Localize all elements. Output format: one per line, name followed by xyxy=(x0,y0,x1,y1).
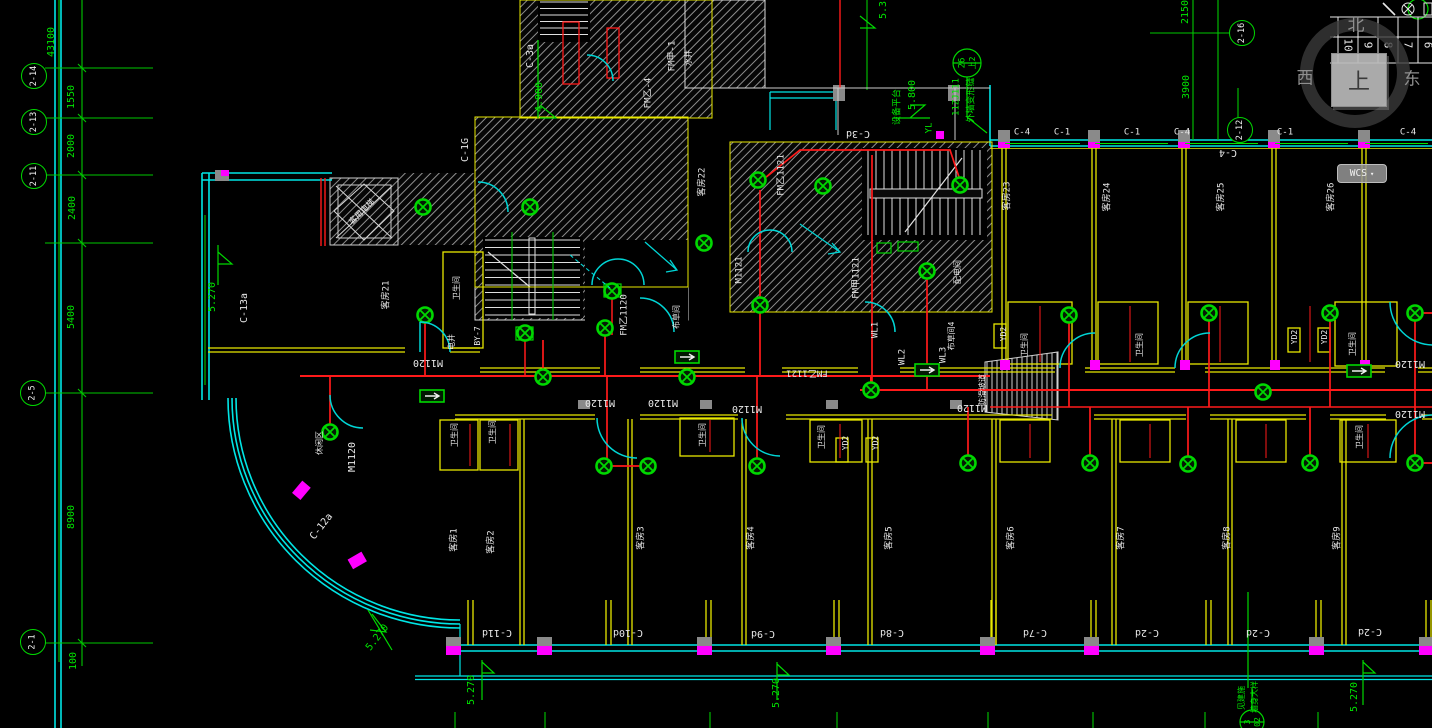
elev-5270-a: 5.270 xyxy=(208,282,218,312)
room-g4: 客房4 xyxy=(748,526,757,549)
bathroom-label: 卫生间 xyxy=(1349,332,1357,356)
wl2-label: WL2 xyxy=(899,349,908,365)
elev-5270-b: 5.270 xyxy=(467,675,477,705)
win-c4-dn: C-4 xyxy=(1219,147,1237,157)
win-c2d-1: C-2d xyxy=(1135,627,1159,637)
bathroom-label: 卫生间 xyxy=(1356,425,1364,449)
grid-bubble-2-1: 2-1 xyxy=(20,629,46,655)
win-c9d: C-9d xyxy=(751,628,775,638)
grid-bubble-2-11: 2-11 xyxy=(21,163,47,189)
wall-detail-label: 墙身大样 xyxy=(1251,681,1259,713)
platform-label: 设备平台 xyxy=(894,89,903,125)
dim-2000: 2000 xyxy=(67,134,77,158)
door-fmy1121-b: FM乙1121 xyxy=(786,368,828,377)
win-c3d: C-3d xyxy=(846,128,870,138)
dim-2400: 2400 xyxy=(68,196,78,220)
win-c13a: C-13a xyxy=(240,293,250,323)
win-c1-1: C-1 xyxy=(1054,129,1070,138)
dim-100: 100 xyxy=(69,652,79,670)
grid-bubble-2-12: 2-12 xyxy=(1227,117,1253,143)
win-c3a: C-3a xyxy=(526,44,536,68)
viewcube-top-face[interactable]: 上 xyxy=(1331,53,1387,107)
see-arch-label: 见建施 xyxy=(1238,686,1246,710)
detail1-bottom: 上2 xyxy=(969,57,977,70)
room-g2: 客房2 xyxy=(488,530,497,553)
yd2-label: YD2 xyxy=(842,436,850,450)
win-c1g: C-1G xyxy=(461,138,471,162)
chevron-down-icon: ▾ xyxy=(1370,170,1374,178)
grid-bubble-2-5: 2-5 xyxy=(20,380,46,406)
door-m1120-c: M1120 xyxy=(648,397,678,407)
room-g24: 客房24 xyxy=(1104,183,1113,212)
dim-2150: 2150 xyxy=(1181,0,1191,24)
door-m1120-g: M1120 xyxy=(1395,408,1425,418)
win-c2d-2: C-2d xyxy=(1246,627,1270,637)
room-g1: 客房1 xyxy=(451,528,460,551)
room-g26: 客房26 xyxy=(1328,183,1337,212)
detail2-bottom: 02 xyxy=(1254,717,1262,727)
wcs-menu[interactable]: WCS▾ xyxy=(1337,164,1387,183)
room-g9: 客房9 xyxy=(1334,526,1343,549)
door-m1120-f: M1120 xyxy=(1395,358,1425,368)
win-c1-2: C-1 xyxy=(1124,129,1140,138)
door-fmj1121: FM甲1121 xyxy=(853,257,862,299)
dim-8900: 8900 xyxy=(67,505,77,529)
interior-walls xyxy=(208,0,1432,645)
win-c4-2: C-4 xyxy=(1174,129,1190,138)
detail1-top: 26 xyxy=(959,58,968,69)
joint-ref-label: 11ZJ111 xyxy=(953,78,962,116)
bathroom-label: 卫生间 xyxy=(453,276,461,300)
win-c11d: C-11d xyxy=(482,627,512,637)
elev-5-3: 5.3 xyxy=(879,1,889,19)
room-g23: 客房23 xyxy=(1004,182,1013,211)
bathroom-label: 卫生间 xyxy=(1136,333,1144,357)
by7-label: BY-7 xyxy=(474,326,482,345)
win-c4-1: C-4 xyxy=(1014,129,1030,138)
yl-label: YL xyxy=(926,123,935,134)
door-fmy1120: FM乙1120 xyxy=(621,294,630,336)
win-c10d: C-10d xyxy=(613,627,643,637)
yd2-label: YD2 xyxy=(1000,327,1008,341)
room-g3: 客房3 xyxy=(638,526,647,549)
dj-label: 电井 xyxy=(448,334,456,350)
bathroom-label: 卫生间 xyxy=(489,420,497,444)
drawing-geometry xyxy=(0,0,1432,728)
wl3-label: WL3 xyxy=(940,347,949,363)
room-g6: 客房6 xyxy=(1008,526,1017,549)
door-m1120-h: M1120 xyxy=(348,442,358,472)
door-m1120-b: M1120 xyxy=(585,397,615,407)
room-g7: 客房7 xyxy=(1118,526,1127,549)
yd2-label: YD2 xyxy=(1291,330,1299,344)
leisure-label: 休闲区 xyxy=(316,431,324,455)
dim-5400: 5400 xyxy=(67,305,77,329)
win-c8d: C-8d xyxy=(880,627,904,637)
room-g25: 客房25 xyxy=(1218,183,1227,212)
door-fmj1: FM甲-1 xyxy=(669,41,678,72)
bathroom-label: 卫生间 xyxy=(818,425,826,449)
joint-label: 外墙变形缝 xyxy=(968,77,977,122)
room-g21: 客房21 xyxy=(383,281,392,310)
room-g22: 客房22 xyxy=(699,168,708,197)
dim-1550: 1550 xyxy=(67,85,77,109)
shaft-label: 水井 xyxy=(685,50,693,66)
bathroom-label: 卫生间 xyxy=(1021,333,1029,357)
door-m1120-a: M1120 xyxy=(413,357,443,367)
door-m1120-d: M1120 xyxy=(732,403,762,413)
elec-room-label: 配电间 xyxy=(954,260,962,284)
cad-viewport[interactable]: 43100 1550 2000 2400 5400 8900 100 2150 … xyxy=(0,0,1432,728)
detail2-top: 3 xyxy=(1244,720,1252,725)
viewcube-west[interactable]: 西 xyxy=(1297,64,1314,89)
win-c1-3: C-1 xyxy=(1277,129,1293,138)
win-c4-3: C-4 xyxy=(1400,129,1416,138)
door-fmy4: FM乙-4 xyxy=(645,78,654,109)
door-m1121: M1121 xyxy=(736,256,745,283)
yd2-label: YD2 xyxy=(872,436,880,450)
elev-4900: 4.900 xyxy=(535,82,545,112)
viewcube-east[interactable]: 东 xyxy=(1404,65,1421,90)
linen-label: 布草间 xyxy=(673,305,681,329)
elev-5270-d: 5.270 xyxy=(1350,682,1360,712)
linen4-label: 布草间4 xyxy=(948,322,956,351)
border-num-6: 6 xyxy=(1423,42,1432,49)
door-fmy1121-a: FM乙1121 xyxy=(778,154,787,196)
grid-bubble-2-16: 2-16 xyxy=(1229,20,1255,46)
grid-bubble-2-14: 2-14 xyxy=(21,63,47,89)
grid-bubble-2-13: 2-13 xyxy=(21,109,47,135)
room-g5: 客房5 xyxy=(886,526,895,549)
elev-5800: 5.800 xyxy=(908,80,918,110)
elev-5270-c: 5.270 xyxy=(772,678,782,708)
dim-43100: 43100 xyxy=(47,27,57,57)
room-g8: 客房8 xyxy=(1224,526,1233,549)
viewcube-north[interactable]: 北 xyxy=(1348,11,1365,36)
dim-3900: 3900 xyxy=(1182,75,1192,99)
ramp-label: 防滑坡道 xyxy=(979,374,987,406)
bathroom-label: 卫生间 xyxy=(451,423,459,447)
wl1-label: WL1 xyxy=(872,322,881,338)
win-c7d: C-7d xyxy=(1023,627,1047,637)
win-c2d-3: C-2d xyxy=(1358,626,1382,636)
yd2-label: YD2 xyxy=(1321,330,1329,344)
bathroom-label: 卫生间 xyxy=(699,423,707,447)
